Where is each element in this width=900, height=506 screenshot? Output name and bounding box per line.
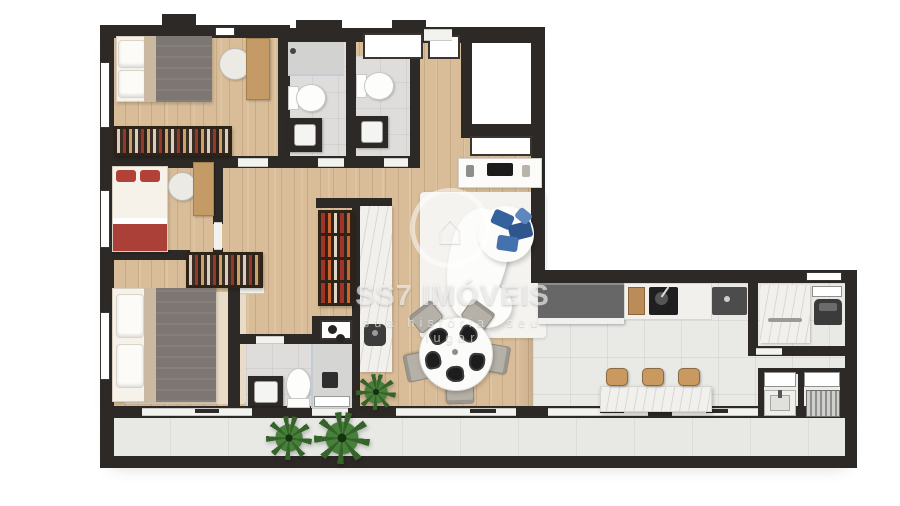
- shower-drain: [322, 372, 338, 388]
- door-opening: [756, 348, 782, 355]
- bar-stool: [642, 368, 664, 386]
- kitchen-counter: [360, 206, 392, 372]
- door-opening: [238, 158, 268, 167]
- bed-blanket-red: [113, 224, 167, 251]
- washer-lid: [819, 303, 837, 311]
- entry-shaft: [472, 43, 531, 126]
- wardrobe: [186, 252, 263, 288]
- rack-shelf: [321, 283, 351, 303]
- rack-shelf: [321, 213, 351, 233]
- duct-block: [162, 14, 196, 26]
- bed-runner: [144, 288, 156, 402]
- cabinet: [628, 287, 645, 315]
- bed-pillow-red: [116, 170, 136, 182]
- closet-window: [804, 372, 840, 387]
- bed-blanket: [156, 36, 212, 102]
- bed-pillow: [116, 344, 144, 388]
- floor-plan: ⌂ SS7 IMÓVEIS sua história, seu lugar: [0, 0, 900, 506]
- bed-pillow: [118, 40, 146, 68]
- shower-glass: [288, 74, 344, 76]
- wall-segment: [845, 270, 857, 468]
- desk: [246, 38, 270, 100]
- wall-segment: [346, 28, 356, 168]
- toilet: [286, 368, 311, 402]
- shower: [288, 42, 344, 74]
- rack-shelf: [321, 260, 351, 280]
- sofa-cushion: [496, 235, 519, 253]
- closet-window: [764, 372, 796, 387]
- bed-pillow-red: [140, 170, 160, 182]
- door-opening: [214, 222, 222, 250]
- shower-head: [290, 48, 296, 54]
- plant: [314, 412, 370, 464]
- window: [806, 272, 842, 281]
- window: [100, 190, 110, 248]
- duct-block: [296, 20, 342, 30]
- vanity-sink: [294, 124, 316, 146]
- door-opening: [318, 158, 344, 167]
- master-wardrobe: [114, 126, 232, 156]
- plant: [266, 416, 312, 460]
- bar-stool: [606, 368, 628, 386]
- console-decor: [466, 165, 474, 177]
- hanging-clothes: [117, 129, 229, 153]
- wall-segment: [213, 156, 223, 224]
- plant: [356, 374, 396, 410]
- wall-segment: [410, 44, 420, 168]
- door-opening: [256, 336, 284, 344]
- window: [363, 33, 423, 59]
- bed-pillow: [118, 70, 146, 98]
- toilet-tank: [287, 398, 310, 408]
- rack-shelf: [321, 236, 351, 256]
- console-decor: [522, 165, 530, 177]
- window: [100, 312, 110, 380]
- bed-pillow: [116, 294, 144, 338]
- tv: [487, 163, 513, 176]
- door-opening: [384, 158, 408, 167]
- kitchen-sink-counter: [712, 287, 747, 315]
- wall-segment: [100, 456, 857, 468]
- trash-bin: [328, 325, 337, 334]
- sink-faucet: [372, 330, 378, 336]
- entry-door-opening: [424, 29, 452, 41]
- window: [470, 136, 532, 156]
- counter-groove: [768, 318, 802, 322]
- bed-runner: [144, 36, 156, 102]
- kitchen-counter: [538, 283, 624, 323]
- hanging-clothes: [189, 255, 260, 285]
- tank-faucet: [778, 390, 782, 398]
- island-counter: [600, 386, 712, 412]
- laundry-counter: [760, 285, 810, 343]
- desk: [193, 162, 214, 216]
- toilet: [364, 72, 394, 100]
- door-handle: [195, 409, 219, 413]
- bed-blanket: [156, 288, 216, 402]
- vanity-sink: [254, 381, 278, 403]
- balcony-floor: [112, 414, 845, 458]
- wall-segment: [748, 283, 758, 353]
- sink-faucet: [724, 296, 730, 302]
- laundry-shelf: [812, 286, 842, 297]
- shower-niche: [314, 396, 350, 407]
- counter-lip: [538, 318, 624, 324]
- window: [100, 62, 110, 128]
- toilet: [296, 84, 326, 112]
- vanity-sink: [361, 121, 383, 143]
- wall-segment: [228, 288, 240, 408]
- sliding-door-threshold: [396, 408, 516, 416]
- door-handle: [470, 409, 496, 413]
- window: [215, 27, 235, 36]
- trash-bin: [336, 334, 345, 343]
- wine-rack: [318, 210, 354, 306]
- duct-block: [392, 20, 426, 30]
- bar-stool: [678, 368, 700, 386]
- washing-machine: [806, 390, 840, 417]
- wall-segment: [545, 270, 845, 283]
- table-centerpiece: [452, 349, 458, 355]
